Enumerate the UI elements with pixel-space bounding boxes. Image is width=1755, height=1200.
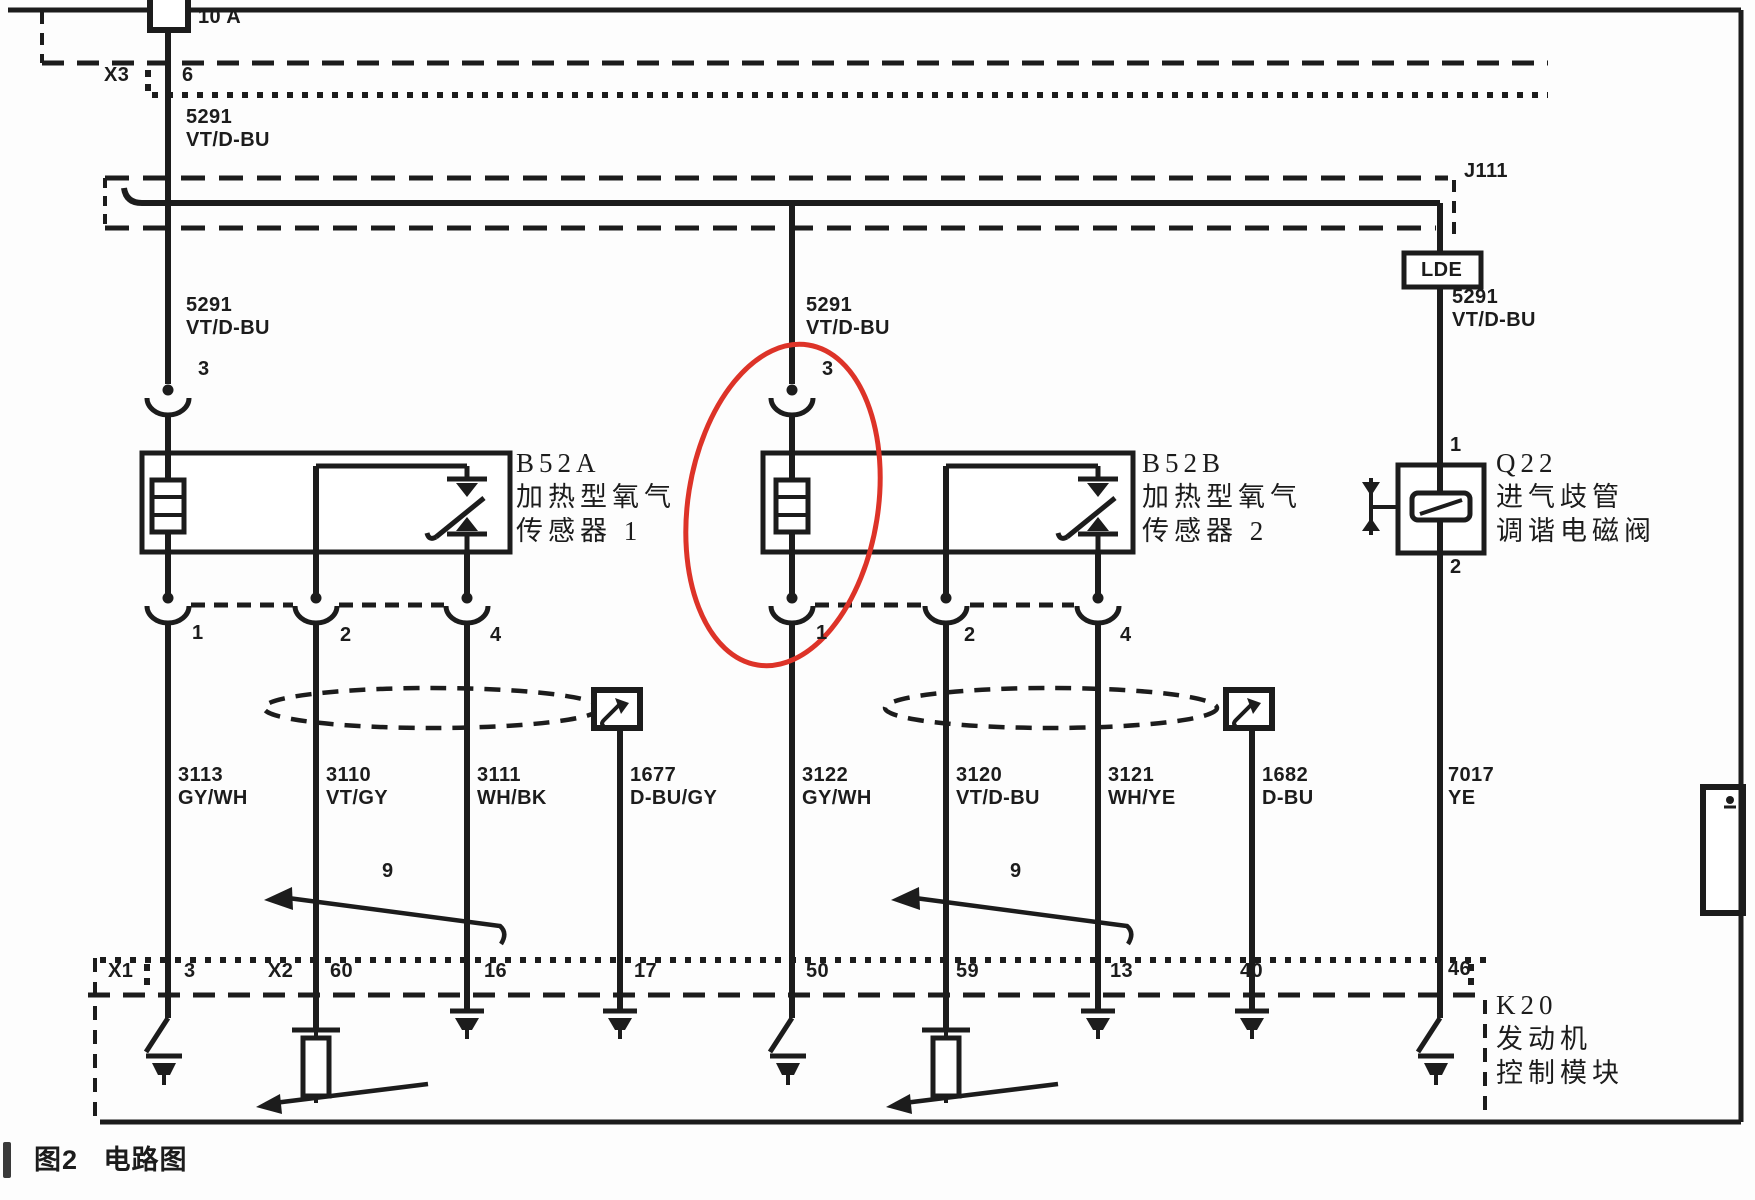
component-b52a-label: B52A 加热型氧气 传感器 1: [516, 446, 676, 548]
k20-pin-60-label: 60: [330, 960, 353, 983]
wire-3120-label: 3120 VT/D-BU: [956, 764, 1040, 810]
x3-pin-6-label: 6: [182, 64, 194, 87]
wire-5291-label-top: 5291 VT/D-BU: [186, 106, 270, 152]
fuse-symbol: [150, 0, 188, 30]
twist-label-left: 9: [382, 860, 394, 883]
wire-3122-label: 3122 GY/WH: [802, 764, 872, 810]
lde-connector-label: LDE: [1421, 259, 1462, 282]
inline-connector-cup: [771, 398, 813, 415]
b52b-pin-4-label: 4: [1120, 624, 1132, 647]
wire-5291-label-right: 5291 VT/D-BU: [1452, 286, 1536, 332]
suppression-diode-icon: [1362, 478, 1398, 535]
junction-j111-label: J111: [1464, 160, 1508, 183]
wire-5291-label-middle: 5291 VT/D-BU: [806, 294, 890, 340]
heater-element-icon: [152, 480, 184, 532]
twist-label-right: 9: [1010, 860, 1022, 883]
component-k20-label: K20 发动机 控制模块: [1496, 988, 1624, 1090]
connector-x3-label: X3: [104, 64, 129, 87]
k20-pin-17-label: 17: [634, 960, 657, 983]
resistor-icon: [933, 1038, 959, 1096]
internal-resistor-left: [256, 995, 428, 1114]
junction-j111-row: [105, 178, 1454, 238]
k20-pin-3-label: 3: [184, 960, 196, 983]
splice-group-left: [264, 688, 640, 995]
ground-symbols-direct: [450, 995, 1269, 1039]
component-q22-label: Q22 进气歧管 调谐电磁阀: [1496, 446, 1656, 548]
k20-pin-16-label: 16: [484, 960, 507, 983]
wire-3111-label: 3111 WH/BK: [477, 764, 547, 810]
wiring-diagram-page: 10 AX365291 VT/D-BUJ111LDE5291 VT/D-BU52…: [0, 0, 1755, 1200]
k20-pin-13-label: 13: [1110, 960, 1133, 983]
terminal-blob: [787, 385, 798, 396]
inline-connector-cup: [147, 398, 189, 415]
connector-x2-label: X2: [268, 960, 293, 983]
component-q22: [1362, 465, 1484, 995]
wire-7017-label: 7017 YE: [1448, 764, 1494, 810]
figure-caption: 图2 电路图: [34, 1144, 188, 1176]
continuation-arrow: [896, 1084, 1058, 1104]
power-bus-5291: [124, 188, 1440, 203]
q22-pin-1-label: 1: [1450, 434, 1462, 457]
b52b-pin-1-label: 1: [816, 622, 828, 645]
k20-pin-50-label: 50: [806, 960, 829, 983]
feed-wires: [147, 0, 1440, 465]
b52a-pin-2-label: 2: [340, 624, 352, 647]
component-b52b-label: B52B 加热型氧气 传感器 2: [1142, 446, 1302, 548]
continuation-arrow: [266, 1084, 428, 1104]
connector-x3-row: [42, 12, 1548, 95]
k20-pin-46-label: 46: [1448, 958, 1471, 981]
harness-ellipse: [885, 688, 1217, 728]
wire-3121-label: 3121 WH/YE: [1108, 764, 1176, 810]
inline-pin-3-label-left: 3: [198, 358, 210, 381]
wire-3110-label: 3110 VT/GY: [326, 764, 388, 810]
b52a-pin-1-label: 1: [192, 622, 204, 645]
q22-pin-2-label: 2: [1450, 556, 1462, 579]
fuse-rating-label: 10 A: [198, 6, 241, 29]
inline-pin-3-label-middle: 3: [822, 358, 834, 381]
wire-5291-label-left: 5291 VT/D-BU: [186, 294, 270, 340]
component-b52a: [142, 453, 510, 552]
terminal-blob: [163, 385, 174, 396]
wire-1677-label: 1677 D-BU/GY: [630, 764, 717, 810]
connector-x1-label: X1: [108, 960, 133, 983]
k20-pin-59-label: 59: [956, 960, 979, 983]
partial-component-box: [1703, 787, 1743, 913]
component-b52b: [763, 453, 1133, 552]
wire-3113-label: 3113 GY/WH: [178, 764, 248, 810]
resistor-icon: [303, 1038, 329, 1096]
internal-resistor-right: [886, 995, 1058, 1114]
b52b-pin-2-label: 2: [964, 624, 976, 647]
k20-pin-40-label: 40: [1240, 960, 1263, 983]
spine-mark: [3, 1142, 11, 1178]
heater-element-icon: [776, 480, 808, 532]
wire-1682-label: 1682 D-BU: [1262, 764, 1314, 810]
b52a-pin-4-label: 4: [490, 624, 502, 647]
